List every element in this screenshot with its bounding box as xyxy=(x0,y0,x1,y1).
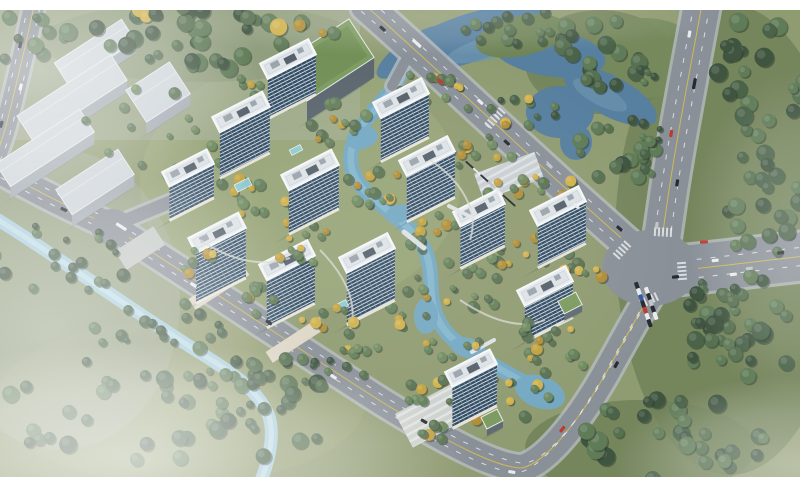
aerial-rendering-canvas xyxy=(0,0,800,485)
aerial-masterplan-image xyxy=(0,0,800,485)
white-margin-bottom xyxy=(0,477,800,485)
white-margin-top xyxy=(0,0,800,10)
haze-patch xyxy=(40,40,680,460)
